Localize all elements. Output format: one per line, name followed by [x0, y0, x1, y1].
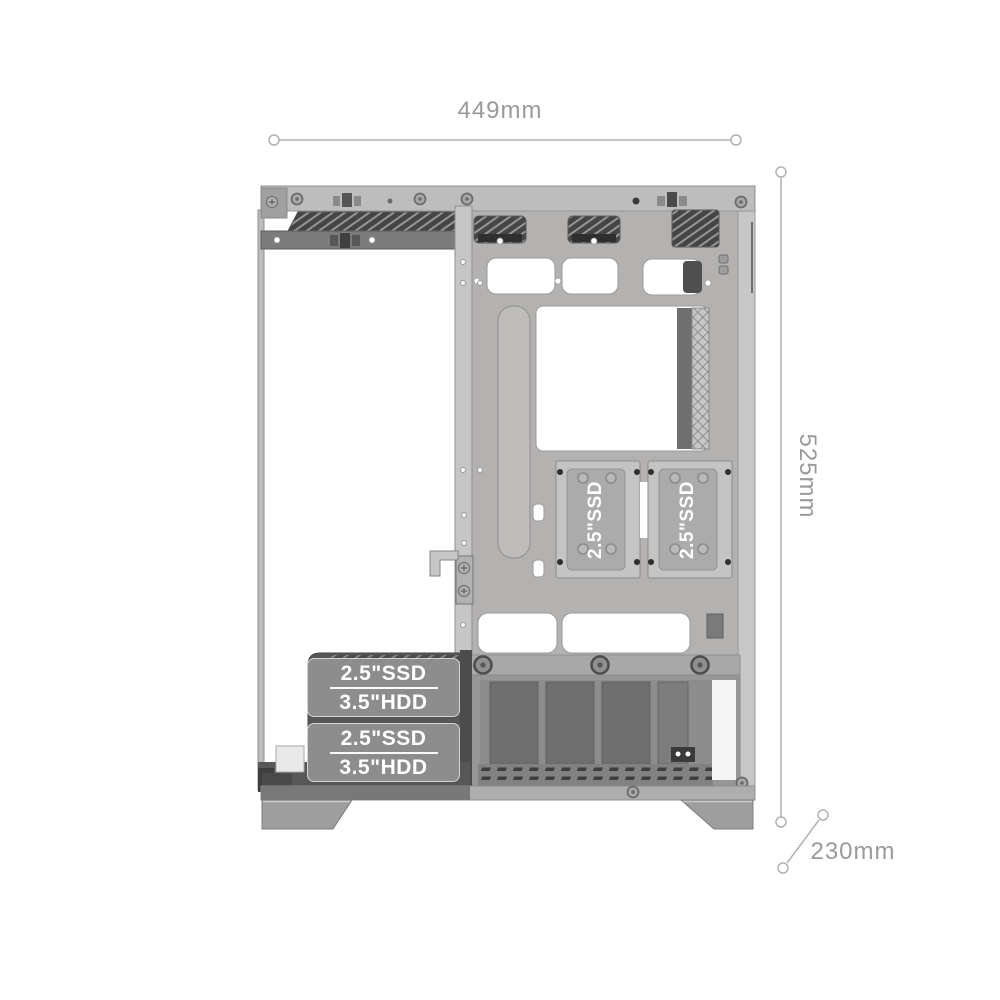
gpu-support-bracket	[430, 551, 458, 576]
drive-bay-label-1: 2.5"SSD 3.5"HDD	[307, 658, 460, 717]
width-dimension-label: 449mm	[440, 97, 560, 125]
bay2-ssd-label: 2.5"SSD	[341, 727, 427, 750]
ssd-mount-label-2: 2.5"SSD	[677, 465, 699, 575]
bay2-hdd-label: 3.5"HDD	[339, 756, 427, 779]
height-dimension-line	[776, 167, 786, 827]
rear-fan-mesh	[692, 308, 709, 449]
case-bottom	[261, 786, 755, 829]
front-foot	[262, 800, 352, 829]
depth-dimension-label: 230mm	[795, 838, 911, 866]
bay1-hdd-label: 3.5"HDD	[339, 691, 427, 714]
ssd-mount-label-1: 2.5"SSD	[585, 465, 607, 575]
width-dimension-line	[269, 135, 741, 145]
drive-bay-label-2: 2.5"SSD 3.5"HDD	[307, 723, 460, 782]
pc-case-dimension-diagram: 449mm 525mm 230mm 2.5"SSD 2.5"SSD 2.5"SS…	[0, 0, 1000, 1000]
front-strut	[430, 206, 473, 676]
bay1-divider-line	[330, 687, 438, 689]
bottom-vent-floor	[478, 764, 713, 786]
rear-foot	[681, 800, 753, 829]
height-dimension-label: 525mm	[793, 416, 821, 536]
bay1-ssd-label: 2.5"SSD	[341, 662, 427, 685]
rear-top-vent	[672, 210, 719, 247]
front-top-vent	[288, 212, 458, 231]
cpu-cutout	[536, 306, 709, 451]
bay2-divider-line	[330, 752, 438, 754]
